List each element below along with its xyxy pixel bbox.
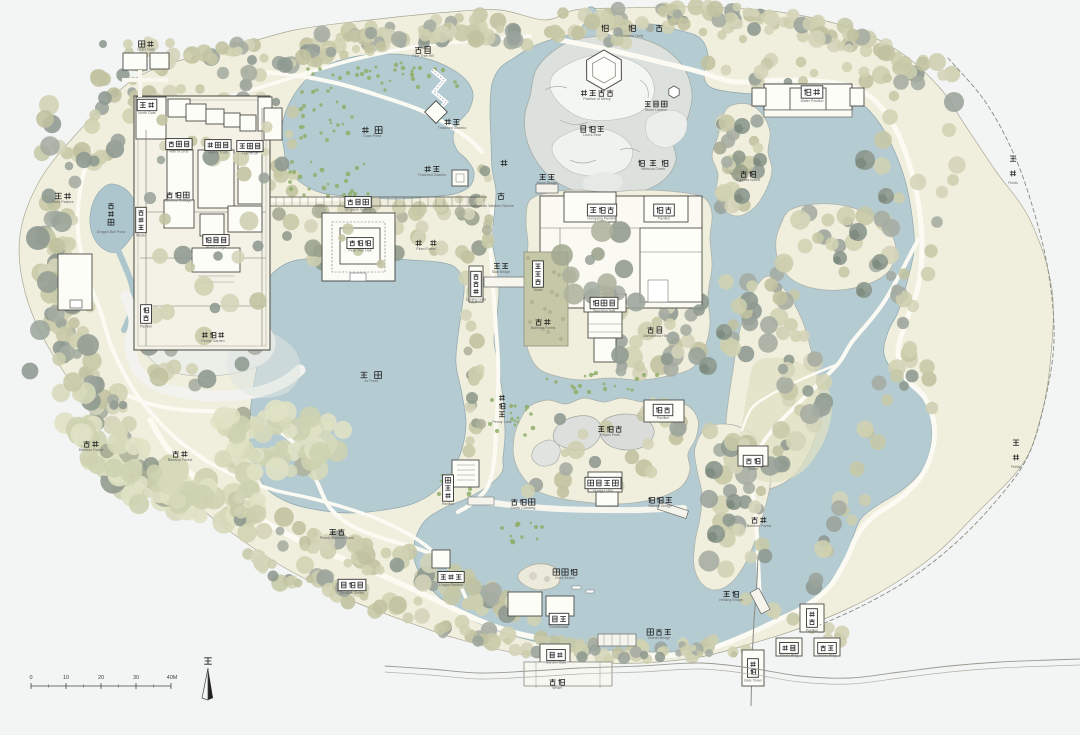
svg-text:Bamboo Forest: Bamboo Forest [531,326,556,330]
svg-text:Osmanthus Hill: Osmanthus Hill [643,334,668,338]
svg-text:Tower: Tower [533,288,543,292]
svg-text:Guan Pond: Guan Pond [363,134,381,138]
svg-text:Studio: Studio [136,234,146,238]
svg-text:Pavilion of Mercy: Pavilion of Mercy [583,97,611,101]
svg-text:Gate Tower: Gate Tower [744,678,763,682]
svg-text:Wharf: Wharf [552,686,562,690]
svg-text:Peony Garden: Peony Garden [201,339,224,343]
svg-text:Hall of Truth: Hall of Truth [208,150,227,154]
svg-text:Pavilion: Pavilion [657,416,670,420]
svg-text:Shuizhou Hall: Shuizhou Hall [593,309,615,313]
svg-text:Peony Lane: Peony Lane [492,420,511,424]
svg-text:Stone Bridge: Stone Bridge [537,181,558,185]
svg-text:Slab Bridge: Slab Bridge [492,270,511,274]
svg-text:Annex Bldg: Annex Bldg [818,654,836,658]
svg-text:Outer Gate: Outer Gate [137,48,155,52]
svg-text:Ju Pond: Ju Pond [364,379,377,383]
svg-text:North Gate: North Gate [138,111,156,115]
svg-text:Bamboo Cottage: Bamboo Cottage [165,199,192,203]
svg-text:Bamboo Forest: Bamboo Forest [168,458,193,462]
svg-text:Wuban Bridge: Wuban Bridge [648,636,671,640]
svg-text:Dragon Ball Pond: Dragon Ball Pond [97,230,125,234]
svg-text:Swallow Shrine: Swallow Shrine [340,591,365,595]
svg-text:Water Pavilion: Water Pavilion [800,99,823,103]
svg-text:Thatched Gazebo: Thatched Gazebo [438,126,467,130]
svg-text:Lion's Seat: Lion's Seat [583,133,601,137]
svg-text:Deer Pasture: Deer Pasture [52,200,73,204]
svg-text:Hibiscus Creek: Hibiscus Creek [641,167,665,171]
svg-text:Stone Lantern: Stone Lantern [645,108,668,112]
svg-text:Bamboo Forest: Bamboo Forest [747,524,772,528]
svg-text:Fields: Fields [1011,465,1021,469]
svg-text:Pavilion: Pavilion [806,628,819,632]
svg-text:Annex Bldg: Annex Bldg [780,654,798,658]
svg-text:Feiyun Peak: Feiyun Peak [600,433,620,437]
svg-text:Qingqian Gallery: Qingqian Gallery [345,207,372,211]
svg-text:Pine Tree Hill: Pine Tree Hill [412,54,434,58]
svg-text:Huazi Lodge: Huazi Lodge [206,245,226,249]
svg-text:Hongqing Pavilion: Hongqing Pavilion [588,216,617,220]
svg-text:Thatched Gazebo: Thatched Gazebo [418,173,447,177]
svg-text:Plum Forest: Plum Forest [416,247,435,251]
svg-text:Cypress Island: Cypress Island [736,178,760,182]
svg-text:30: 30 [133,675,139,681]
svg-text:40M: 40M [167,675,178,681]
svg-text:Huaigui Villa: Huaigui Villa [593,489,613,493]
svg-text:Studio: Studio [748,467,758,471]
svg-text:Pavilion: Pavilion [140,324,153,328]
svg-text:Fields: Fields [1008,181,1018,185]
svg-text:Pear Tree Hall: Pear Tree Hall [349,248,372,252]
svg-text:Wanzai Bridge: Wanzai Bridge [648,504,671,508]
svg-text:Duck Beach: Duck Beach [555,576,574,580]
svg-text:0: 0 [29,675,32,681]
svg-text:Pavilion: Pavilion [442,502,455,506]
svg-text:Lingbo Pavilion: Lingbo Pavilion [439,583,463,587]
svg-text:Pavilion: Pavilion [658,216,671,220]
svg-text:20: 20 [98,675,104,681]
svg-text:Hall of Lens: Hall of Lens [170,149,189,153]
svg-text:Garden Gate: Garden Gate [546,661,567,665]
svg-text:Laiqing Gate: Laiqing Gate [466,298,486,302]
svg-text:Peach Blossom Bank: Peach Blossom Bank [320,536,354,540]
svg-text:Bamboo Forest: Bamboo Forest [79,448,104,452]
svg-text:Heliang Bridge: Heliang Bridge [719,598,743,602]
svg-text:Crooked Gully: Crooked Gully [621,34,644,38]
svg-text:Guesthouse: Guesthouse [549,625,568,629]
svg-text:Creek Crossing: Creek Crossing [511,506,536,510]
svg-text:10: 10 [63,675,69,681]
svg-text:Western Ravine: Western Ravine [488,204,514,208]
svg-text:Hall of Sit: Hall of Sit [242,151,257,155]
